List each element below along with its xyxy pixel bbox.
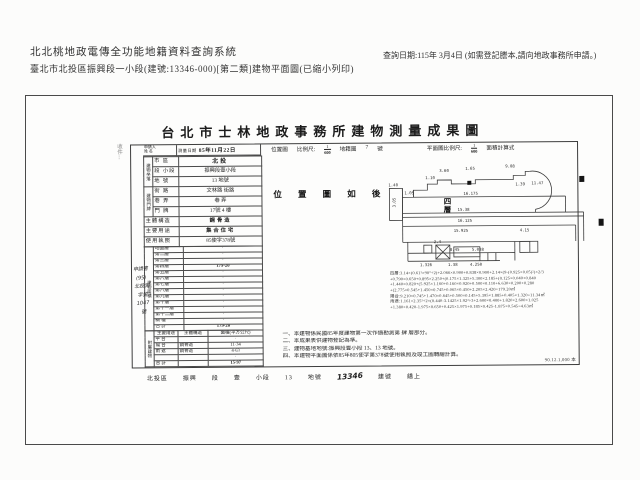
table-row: 合 計15·97 <box>145 360 263 367</box>
margin-receipt-note: 收件⋮ <box>115 144 123 184</box>
floor-plan-drawing: 9.08 1.65 3.60 16.175 15.38 16.125 15.92… <box>379 149 605 269</box>
footer-token: 北投區 <box>147 373 168 382</box>
dimension-label: 15.925 <box>454 228 469 233</box>
floor-label-char: 層 <box>444 205 452 214</box>
applicant-header-cell: 申請人 姓 名 <box>143 145 177 156</box>
dimension-label: 1.40 <box>388 182 398 187</box>
system-title: 北北桃地政電傳全功能地籍資料查詢系統 <box>30 44 237 59</box>
plan-outline <box>389 171 584 262</box>
row-label: 地 號 <box>153 177 179 187</box>
dimension-label: 1.65 <box>465 166 475 171</box>
row-value: 鋼骨造 <box>179 216 262 227</box>
site-group-label: 建物坐落 <box>144 157 153 187</box>
location-scale-num: 1 <box>326 144 328 149</box>
building-info-table: 建物坐落 市 區 北投 段 小段 振興段壹小段 地 號 13 地號 建物門牌 街… <box>143 155 263 247</box>
dimension-label: 1.39 <box>515 181 525 186</box>
dimension-label: 4.250 <box>470 262 483 267</box>
footer-token: 振興 <box>183 373 197 382</box>
cadastral-map-label: 地籍圖 <box>340 145 357 153</box>
footer-token: 繕上 <box>407 371 421 380</box>
attached-structure <box>178 360 208 366</box>
dimension-label: 4.15 <box>520 227 530 232</box>
dimension-label: 16.175 <box>463 191 478 196</box>
attached-structures-table: 附屬建物 主要用途 主體構造 面積(平方公尺) 平 台· 陽 台鋼骨造11·34… <box>144 329 263 367</box>
page: { "header": { "system_title": "北北桃地政電傳全功… <box>0 0 640 480</box>
footer-token: 段 <box>212 373 219 382</box>
footer-token: 壹 <box>234 373 241 382</box>
plan-dimension-labels: 9.08 1.65 3.60 16.175 15.38 16.125 15.92… <box>388 163 544 267</box>
row-value: 集合住宅 <box>179 226 262 237</box>
row-label: 主體構造 <box>144 217 179 227</box>
survey-date-label: 測量日期 <box>178 148 197 153</box>
cadastral-map-number: 7 <box>365 145 368 151</box>
dimension-label: 9.08 <box>505 163 515 168</box>
attached-use: 合 計 <box>154 361 178 367</box>
row-label: 門 牌 <box>153 207 179 217</box>
footer-token: 小段 <box>256 372 270 381</box>
query-date: 查詢日期:115年 3月4日 (如需登記謄本,請向地政事務所申請。) <box>383 50 596 61</box>
location-scale-den: 600 <box>324 149 330 155</box>
dimension-label: 8.45 <box>450 247 460 252</box>
location-scale-fraction: 1 600 <box>324 145 331 155</box>
floor-area-table: 建物面積 地面層 · 第二層· 第三層· 第四層179·20 第五層· 第六層·… <box>144 245 264 331</box>
row-label: 段 小段 <box>153 167 179 177</box>
attached-group-label: 附屬建物 <box>145 331 154 367</box>
dimension-label: 5.038 <box>472 247 485 252</box>
row-label: 市 區 <box>153 157 179 167</box>
calc-line: +1.380×0.420-1.975×0.650+0.425×1.975+0.1… <box>390 303 605 310</box>
survey-date-cell: 測量日期 85年11月22日 <box>177 144 261 156</box>
column-header: 主要用途 <box>154 331 178 337</box>
handwritten-application-stamp: 申請書 (95) 北投測 字第 1047 號 <box>126 264 158 317</box>
footer-building-number-handwritten: 13346 <box>337 371 364 382</box>
document-subject-line: 臺北市北投區振興段一小段(建號:13346-000)[第二類]建物平面圖(已縮小… <box>30 62 354 75</box>
form-print-code: 90.12.1,000 本 <box>545 357 577 363</box>
survey-date-value: 85年11月22日 <box>199 148 236 154</box>
plan-floor-label: 四 層 <box>444 197 452 214</box>
row-value: 巷 弄 <box>179 196 262 207</box>
row-value: 13 地號 <box>179 176 262 187</box>
location-map-label: 位置圖 <box>271 145 288 153</box>
footer-token: 13 <box>285 375 293 381</box>
footer-token: 地號 <box>308 372 322 381</box>
address-group-label: 建物門牌 <box>144 187 153 217</box>
footer-parcel-line: 北投區 振興 段 壹 小段 13 地號 13346 建號 繕上 <box>147 370 597 383</box>
row-value: 文林路 街路 <box>179 186 262 197</box>
applicant-sub-label: 姓 名 <box>144 150 175 155</box>
scale-label: 比例尺: <box>297 145 315 153</box>
row-value: 北投 <box>179 156 262 167</box>
area-calculation-block: 四層:3.14×(0.61²×90°÷2)+2.066×0.900+0.838×… <box>390 269 605 310</box>
footer-token: 建號 <box>378 371 392 380</box>
dimension-label: 1.326 <box>420 262 433 267</box>
dimension-label: 3.60 <box>439 168 449 173</box>
dimension-label: 1.10 <box>425 175 435 180</box>
dimension-label: 16.125 <box>458 218 473 223</box>
dimension-label: 15.38 <box>458 207 471 212</box>
row-label: 街 路 <box>153 187 179 197</box>
row-label: 巷 弄 <box>153 197 179 207</box>
dimension-label: 3.05 <box>391 197 396 207</box>
dimension-label: 11.47 <box>531 180 544 185</box>
scan-frame: 台北市士林地政事務所建物測量成果圖 收件⋮ 申請人 姓 名 測量日期 85年11… <box>25 95 613 445</box>
dimension-label: 2.4 <box>434 239 442 244</box>
attached-area: 15·97 <box>208 360 263 366</box>
row-value: 振興段壹小段 <box>179 166 262 177</box>
survey-form-box: 申請人 姓 名 測量日期 85年11月22日 位置圖 比例尺: 1 600 地籍… <box>130 141 580 369</box>
survey-map-title: 台北市士林地政事務所建物測量成果圖 <box>143 120 503 142</box>
row-value: 17號 4 樓 <box>179 206 262 217</box>
dimension-label: 1.38 <box>448 262 458 267</box>
scanned-document: 台北市士林地政事務所建物測量成果圖 收件⋮ 申請人 姓 名 測量日期 85年11… <box>25 94 614 447</box>
dimension-label: 1.05 <box>404 190 414 195</box>
location-map-reference-note: 位 置 圖 如 後 <box>273 187 387 200</box>
plan-scale-num: 1 <box>473 143 475 148</box>
row-label: 主要用途 <box>144 227 179 237</box>
